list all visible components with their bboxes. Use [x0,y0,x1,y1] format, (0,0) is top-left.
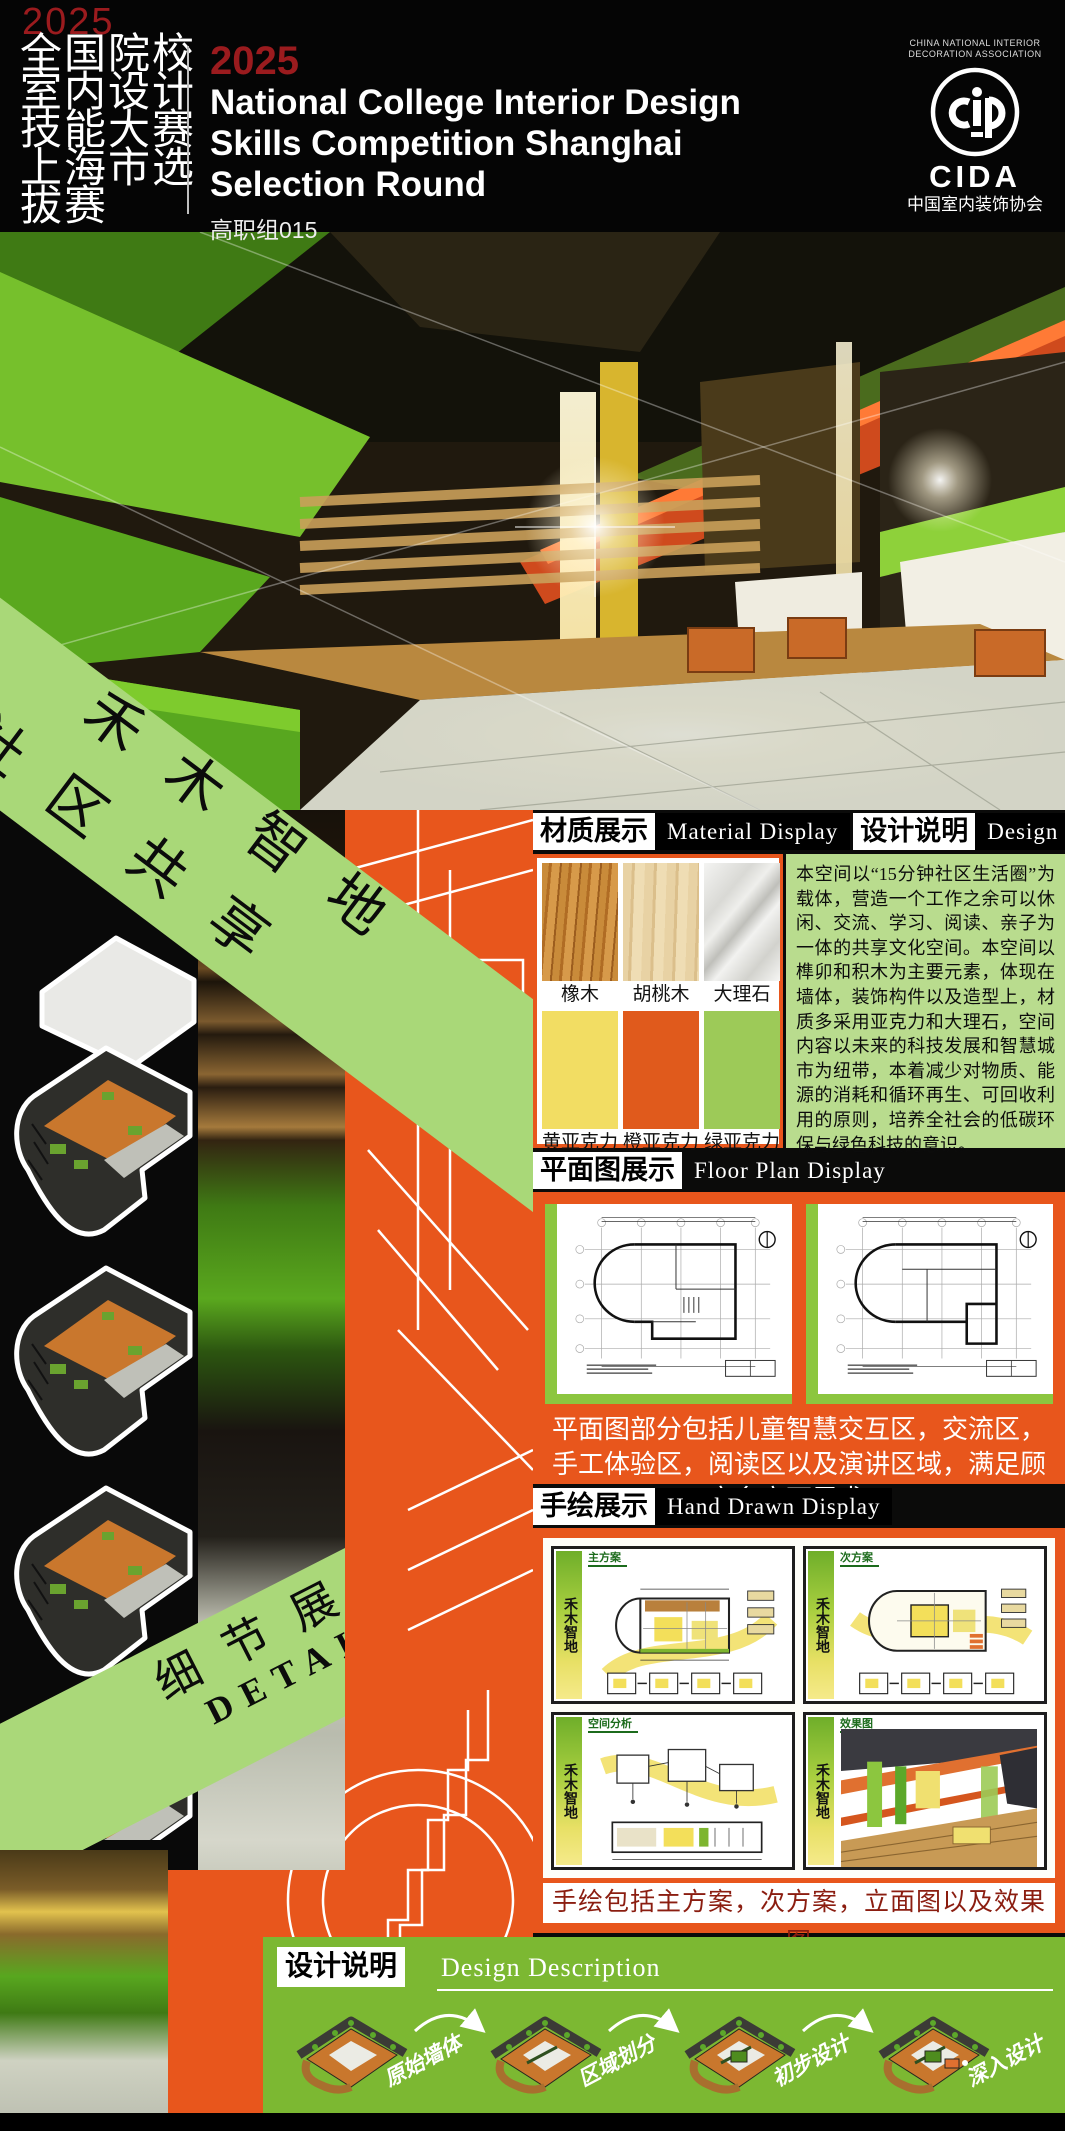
process-header-en: Design Description [441,1951,660,1985]
floor-plan-panel: 平面图部分包括儿童智慧交互区，交流区，手工体验区，阅读区以及演讲区域，满足顾客多… [533,1192,1065,1484]
cida-assoc-en: DECORATION ASSOCIATION [893,49,1057,60]
cn-title-row: 技能大赛 [20,112,196,150]
sketch-main-plan: 禾木智地 主方案 [551,1546,795,1704]
design-process-panel: 设计说明 Design Description [263,1937,1065,2113]
competition-poster: 细节展示 DETAILS 禾木智地 社区共享 材质展示 [0,0,1065,2131]
process-header-cn: 设计说明 [277,1947,405,1987]
material-design-header: 材质展示 Material Display 设计说明 Design Descri… [533,813,1065,850]
oak-label: 橡木 [542,983,618,1009]
floor-plan-1 [545,1204,792,1404]
design-description-text: 本空间以“15分钟社区生活圈”为载体，营造一个工作之余可以休闲、交流、学习、阅读… [796,864,1055,1155]
group-label: 高职组015 [210,217,741,243]
cida-assoc-en: CHINA NATIONAL INTERIOR [893,38,1057,49]
render-photo-bottom-left [0,1850,168,2131]
material-header-en: Material Display [655,813,850,850]
en-title-line: Selection Round [210,164,741,205]
hand-drawn-header: 手绘展示 Hand Drawn Display [533,1488,892,1525]
sketch-logo-strip: 禾木智地 [808,1717,834,1865]
en-title-line: National College Interior Design [210,82,741,123]
sketch-logo-strip: 禾木智地 [556,1717,582,1865]
sketch-secondary-plan: 禾木智地 次方案 [803,1546,1047,1704]
cn-title-block: 全国院校 室内设计 技能大赛 上海市选 拔赛 [20,36,196,226]
cn-title-row: 拔赛 [20,188,196,226]
description-header-en: Design Description [975,813,1065,850]
cn-title-row: 室内设计 [20,74,196,112]
en-title-line: Skills Competition Shanghai [210,123,741,164]
cn-title-row: 上海市选 [20,150,196,188]
oak-texture-swatch [542,863,618,981]
floor-plan-header-cn: 平面图展示 [533,1152,682,1189]
cn-title-row: 全国院校 [20,36,196,74]
cida-logo-block: CHINA NATIONAL INTERIOR DECORATION ASSOC… [893,38,1057,215]
cida-assoc-cn: 中国室内装饰协会 [893,195,1057,215]
en-year-label: 2025 [210,40,741,82]
yellow-acrylic-swatch [542,1011,618,1129]
hand-drawn-caption: 手绘包括主方案，次方案，立面图以及效果图 [543,1883,1055,1923]
poster-header: 2025 全国院校 室内设计 技能大赛 上海市选 拔赛 2025 Nationa… [0,0,1065,232]
en-title-block: 2025 National College Interior Design Sk… [210,40,741,243]
hand-drawn-header-en: Hand Drawn Display [655,1488,892,1525]
marble-texture-swatch [704,863,780,981]
marble-label: 大理石 [704,983,780,1009]
material-display-panel: 橡木 胡桃木 大理石 黄亚克力 橙亚克力 绿亚克力 [533,854,783,1148]
hand-drawn-grid: 禾木智地 主方案 [543,1538,1055,1878]
floor-plan-header: 平面图展示 Floor Plan Display [533,1152,898,1189]
cida-acronym: CIDA [893,160,1057,194]
design-description-panel: 本空间以“15分钟社区生活圈”为载体，营造一个工作之余可以休闲、交流、学习、阅读… [786,854,1065,1148]
sketch-space-analysis: 禾木智地 空间分析 [551,1712,795,1870]
floor-plan-header-en: Floor Plan Display [682,1152,898,1189]
description-header-cn: 设计说明 [853,813,975,850]
walnut-texture-swatch [623,863,699,981]
floor-plan-2 [806,1204,1053,1404]
header-underline [437,1989,1053,1991]
header-divider [187,46,189,214]
material-header-cn: 材质展示 [533,813,655,850]
sketch-perspective: 禾木智地 效果图 [803,1712,1047,1870]
floor-plan-images [545,1204,1053,1404]
massing-diagrams [263,1995,1065,2113]
hand-drawn-header-cn: 手绘展示 [533,1488,655,1525]
orange-acrylic-swatch [623,1011,699,1129]
hand-drawn-panel: 禾木智地 主方案 [533,1528,1065,1933]
walnut-label: 胡桃木 [623,983,699,1009]
sketch-logo-strip: 禾木智地 [556,1551,582,1699]
bottom-black-strip [0,2113,1065,2131]
cida-emblem-icon [929,66,1021,158]
sketch-logo-strip: 禾木智地 [808,1551,834,1699]
green-acrylic-swatch [704,1011,780,1129]
